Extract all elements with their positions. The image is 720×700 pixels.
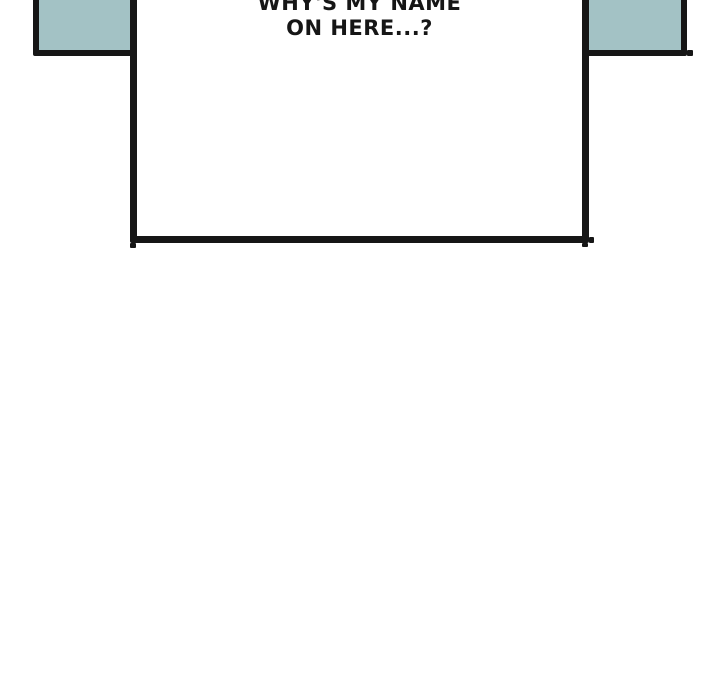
ink-overshoot — [582, 243, 588, 247]
speech-bubble: WHY'S MY NAME ON HERE...? — [130, 0, 589, 243]
ink-overshoot — [687, 50, 693, 56]
ink-overshoot — [589, 237, 594, 243]
speech-line-2: ON HERE...? — [137, 16, 582, 41]
speech-line-1: WHY'S MY NAME — [137, 0, 582, 16]
speech-bubble-text: WHY'S MY NAME ON HERE...? — [137, 0, 582, 41]
ink-overshoot — [130, 243, 136, 248]
comic-page: WHY'S MY NAME ON HERE...? — [0, 0, 720, 700]
